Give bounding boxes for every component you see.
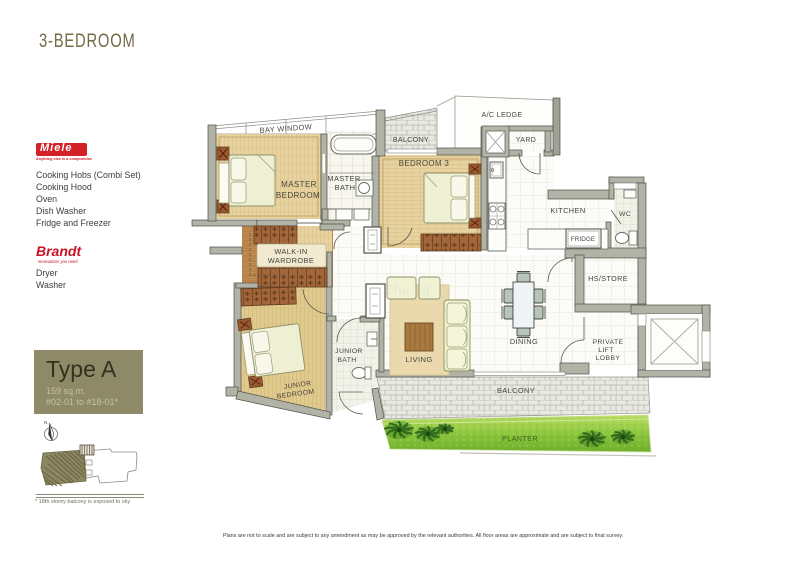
svg-text:KITCHEN: KITCHEN — [550, 206, 585, 215]
svg-text:PRIVATE: PRIVATE — [593, 339, 624, 346]
svg-text:DINING: DINING — [510, 337, 538, 346]
svg-text:BATH: BATH — [337, 357, 356, 364]
svg-text:LIVING: LIVING — [405, 355, 432, 364]
svg-text:BALCONY: BALCONY — [497, 386, 535, 395]
svg-text:A/C LEDGE: A/C LEDGE — [481, 110, 522, 119]
svg-text:WARDROBE: WARDROBE — [268, 256, 314, 265]
svg-text:JUNIOR: JUNIOR — [335, 348, 363, 355]
svg-text:WALK-IN: WALK-IN — [274, 247, 307, 256]
svg-text:Zhu sg: Zhu sg — [385, 282, 431, 297]
svg-text:BALCONY: BALCONY — [393, 137, 429, 144]
svg-text:PLANTER: PLANTER — [502, 434, 538, 443]
svg-text:FRIDGE: FRIDGE — [571, 236, 595, 243]
svg-text:BEDROOM: BEDROOM — [276, 191, 320, 200]
svg-text:N: N — [44, 420, 48, 425]
svg-text:LIFT: LIFT — [598, 347, 614, 354]
svg-text:YARD: YARD — [516, 137, 537, 144]
svg-text:MASTER: MASTER — [281, 180, 317, 189]
svg-text:WC: WC — [619, 211, 631, 218]
svg-text:HS/STORE: HS/STORE — [588, 274, 628, 283]
svg-text:BATH: BATH — [335, 183, 356, 192]
svg-text:LOBBY: LOBBY — [596, 355, 621, 362]
svg-text:MASTER: MASTER — [327, 174, 360, 183]
svg-text:BEDROOM 3: BEDROOM 3 — [399, 159, 449, 168]
